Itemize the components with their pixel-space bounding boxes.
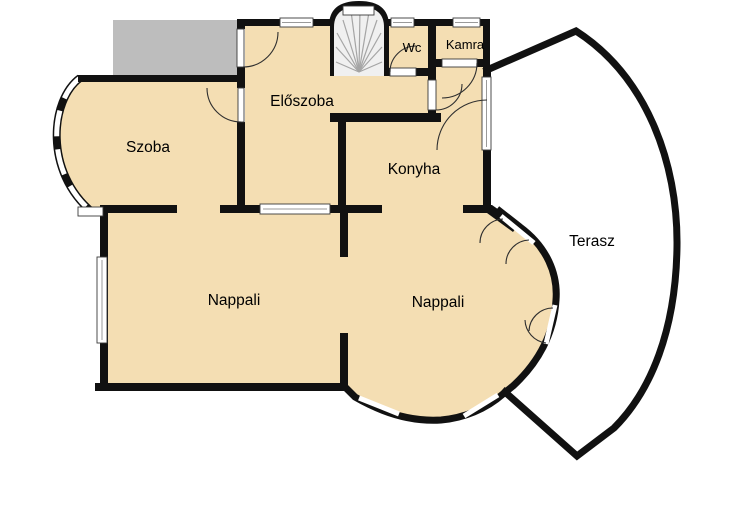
wall-segment [463,205,492,213]
wall-segment [483,150,491,208]
wall-segment [483,66,491,77]
door-leaf-szoba [238,88,244,122]
door-leaf-corridor [428,80,436,110]
wall-segment [428,59,442,67]
wall-segment [330,205,382,213]
wall-segment [237,19,245,29]
room-label-terasz: Terasz [569,233,615,250]
room-label-wc: Wc [403,40,422,55]
wall-segment [220,205,260,213]
room-label-konyha: Konyha [388,161,441,178]
wall-segment [237,82,245,88]
wall-segment [477,59,490,67]
room-fill-nappali-right [345,210,556,420]
wall-segment [428,110,436,116]
door-leaf-entrance [237,29,244,67]
floorplan-canvas: Szoba Előszoba Wc Kamra Konyha Nappali N… [0,0,730,516]
wall-segment [428,67,436,80]
window-szoba-bottom [78,207,103,216]
room-label-nappali-right: Nappali [412,294,465,311]
wall-segment [237,122,245,212]
wall-segment [95,383,348,391]
door-leaf-wc [390,68,416,76]
room-label-nappali-left: Nappali [208,292,261,309]
garage-gray-area [113,20,238,79]
wall-segment [102,205,177,213]
wall-segment [340,213,348,257]
room-label-szoba: Szoba [126,139,170,156]
wall-segment [340,333,348,385]
room-label-kamra: Kamra [446,37,485,52]
room-label-eloszoba: Előszoba [270,93,334,110]
room-fills [58,24,556,420]
wall-segment [330,113,441,122]
window-stair-bay [343,6,374,15]
wall-segment [416,68,430,76]
wall-segment [78,75,240,82]
door-leaf-kamra [442,59,477,67]
wall-segment [338,113,346,213]
floorplan-svg: Szoba Előszoba Wc Kamra Konyha Nappali N… [0,0,730,516]
